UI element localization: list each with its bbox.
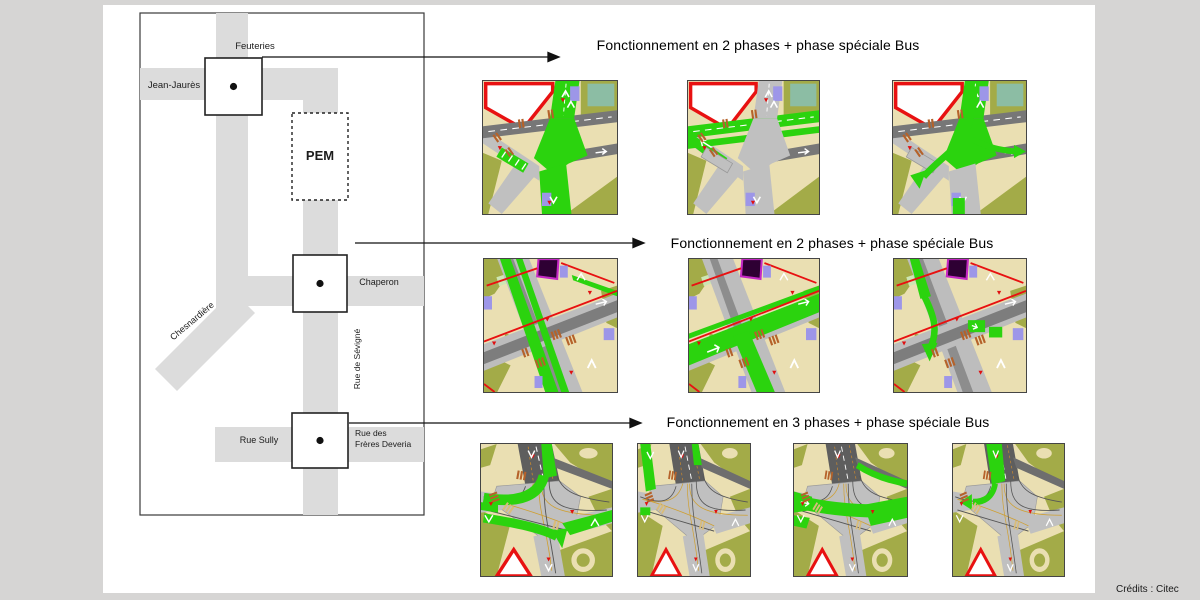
street-label-chaperon: Chaperon <box>351 277 407 287</box>
sim-image-row3-phase-3 <box>793 443 908 577</box>
street-label-feuteries: Feuteries <box>221 41 289 52</box>
sim-image-row3-phase-1 <box>480 443 613 577</box>
street-label-sevigne: Rue de Sévigné <box>352 319 362 399</box>
row-1-title: Fonctionnement en 2 phases + phase spéci… <box>558 37 958 53</box>
pem-label: PEM <box>292 148 348 163</box>
sim-image-row1-phase-2 <box>687 80 820 215</box>
sim-image-row2-phase-bus <box>893 258 1027 393</box>
sim-image-row3-phase-2 <box>637 443 751 577</box>
sim-image-row3-phase-bus <box>952 443 1065 577</box>
street-label-jean-jaures: Jean-Jaurès <box>143 80 205 91</box>
sim-image-row1-phase-bus <box>892 80 1027 215</box>
street-label-deveria: Rue des Frères Deveria <box>355 428 425 451</box>
page-background: Feuteries Jean-Jaurès PEM Chaperon Chesn… <box>0 0 1200 600</box>
sim-image-row2-phase-2 <box>688 258 820 393</box>
row-3-title: Fonctionnement en 3 phases + phase spéci… <box>628 414 1028 430</box>
credits-text: Crédits : Citec <box>1116 584 1179 595</box>
street-label-deveria-line1: Rue des <box>355 428 425 439</box>
sim-image-row1-phase-1 <box>482 80 618 215</box>
row-2-title: Fonctionnement en 2 phases + phase spéci… <box>632 235 1032 251</box>
sim-image-row2-phase-1 <box>483 258 618 393</box>
street-label-rue-sully: Rue Sully <box>229 435 289 445</box>
figure-panel: Feuteries Jean-Jaurès PEM Chaperon Chesn… <box>103 5 1095 593</box>
street-label-deveria-line2: Frères Deveria <box>355 439 425 450</box>
